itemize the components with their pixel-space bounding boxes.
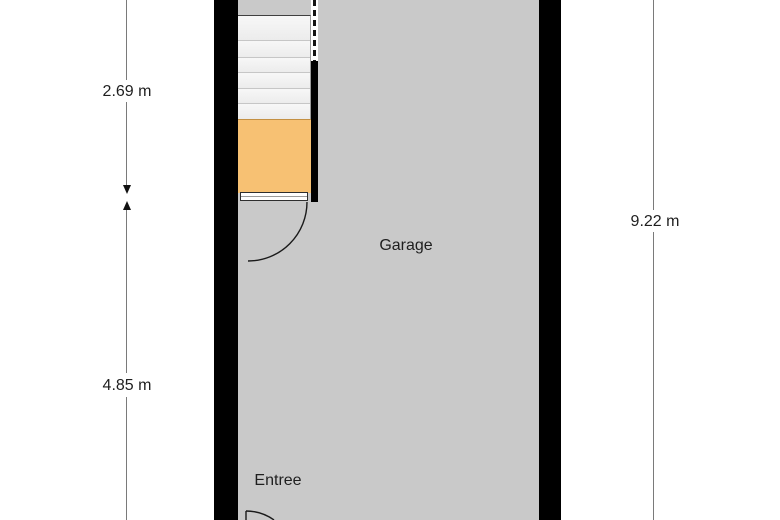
dimension-label-right: 9.22 m	[631, 212, 680, 231]
dimension-line-right-b	[653, 232, 654, 520]
entree-door-swing-arc	[246, 511, 274, 520]
dimension-line-right-a	[653, 0, 654, 210]
dimension-label-lower-left: 4.85 m	[103, 376, 152, 395]
garage-door-swing-arc	[248, 202, 307, 261]
dimension-arrow-up-icon	[123, 201, 131, 210]
dimension-line-left-lower-a	[126, 210, 127, 373]
dimension-line-left-lower-b	[126, 397, 127, 520]
dimension-line-left-upper-b	[126, 102, 127, 187]
floor-plan: Garage Entree 2.69 m 4.85 m 9.22 m	[0, 0, 780, 520]
dimension-arrow-down-icon	[123, 185, 131, 194]
dimension-label-upper-left: 2.69 m	[103, 82, 152, 101]
dimension-line-left-upper-a	[126, 0, 127, 80]
door-arcs-layer	[0, 0, 780, 520]
room-label-garage: Garage	[379, 237, 432, 255]
room-label-entree: Entree	[254, 472, 301, 490]
